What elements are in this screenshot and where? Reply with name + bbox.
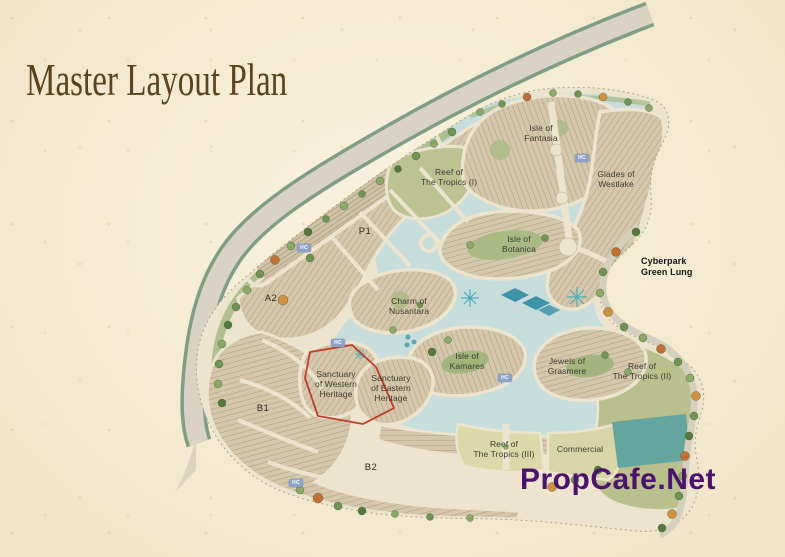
label-cyberpark-green-lung: Cyberpark Green Lung	[641, 256, 711, 279]
hc-marker: HC	[297, 244, 311, 252]
hc-marker: HC	[498, 374, 512, 382]
label-isle-of-botanica: Isle of Botanica	[487, 234, 551, 254]
label-isle-of-fantasia: Isle of Fantasia	[509, 123, 573, 143]
label-glades-of-westlake: Glades of Westlake	[584, 169, 648, 189]
hc-marker: HC	[575, 154, 589, 162]
label-jewels-of-grasmere: Jewels of Grasmere	[535, 356, 599, 376]
hc-marker: HC	[331, 339, 345, 347]
page-title: Master Layout Plan	[26, 57, 287, 103]
hc-marker: HC	[289, 479, 303, 487]
label-zone-b2: B2	[361, 462, 381, 473]
watermark: PropCafe.Net	[520, 463, 716, 497]
parcel-teal-field	[612, 414, 690, 468]
master-plan-canvas: Master Layout Plan Isle of Fantasia Reef…	[0, 0, 785, 557]
label-sanctuary-of-eastern-heritage: Sanctuary of Eastern Heritage	[358, 373, 424, 403]
label-charm-of-nusantara: Charm of Nusantara	[377, 296, 441, 316]
label-reef-of-the-tropics-i: Reef of The Tropics (I)	[411, 167, 487, 187]
label-reef-of-the-tropics-ii: Reef of The Tropics (II)	[604, 361, 680, 381]
label-reef-of-the-tropics-iii: Reef of The Tropics (III)	[464, 439, 544, 459]
label-zone-a2: A2	[261, 293, 281, 304]
label-zone-b1: B1	[253, 403, 273, 414]
road-taper	[175, 438, 196, 492]
label-commercial: Commercial	[548, 444, 612, 454]
label-zone-p1: P1	[355, 226, 375, 237]
label-isle-of-kamares: Isle of Kamares	[435, 351, 499, 371]
